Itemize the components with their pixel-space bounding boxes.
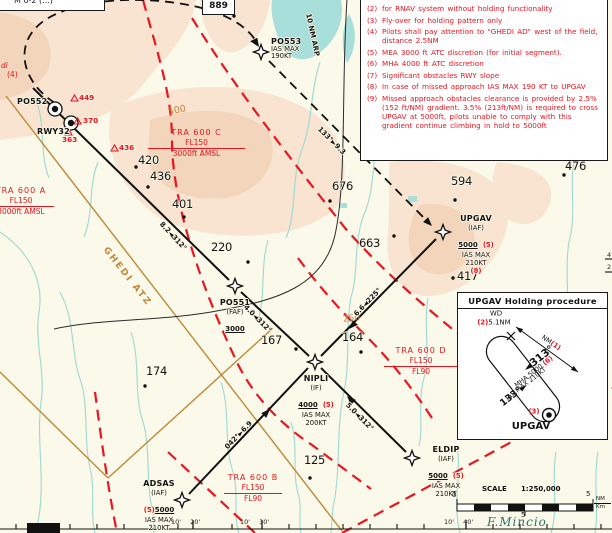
spot-elevation: 476 — [565, 161, 586, 173]
obstacle-elevation: 436 — [119, 144, 134, 151]
river-label: F.Mincio — [487, 516, 547, 528]
graticule-edge-label: 4 — [607, 252, 611, 259]
procedure-notes-box: (2)for RNAV system without holding funct… — [360, 0, 608, 161]
tra-zone-label-b: TRA 600 B FL150 FL90 — [224, 473, 282, 504]
spot-elevation: 594 — [451, 176, 472, 188]
scale-five: 5 — [586, 491, 590, 498]
obstacle-elevation: 449 — [79, 94, 94, 101]
arrowhead-icon — [516, 327, 523, 333]
holding-wd-value: (2)5.1NM — [477, 320, 510, 327]
scale-ratio: 1:250,000 — [521, 486, 561, 493]
note-item: (6)MHA 4000 ft ATC discretion — [367, 59, 602, 68]
note-item: (8)In case of missed approach IAS MAX 19… — [367, 82, 602, 91]
waypoint-icon-po553 — [254, 45, 269, 60]
tra-zone-label-c: TRA 600 C FL150 3000ft AMSL — [148, 128, 245, 159]
waypoint-label-upgav: UPGAV (IAF) 5000 (5) IAS MAX 210KT (8) — [452, 214, 500, 275]
holding-procedure-box: UPGAV Holding procedure WD (2)5.1NM NM(1… — [457, 292, 608, 440]
cutoff-title-box: M 0-2 (...) — [0, 0, 105, 11]
waypoint-icon-po551 — [228, 279, 243, 294]
max-elevation-box: 889 — [202, 0, 235, 15]
cutoff-label-box — [27, 523, 60, 533]
tra-zone-label-d: TRA 600 D FL150 FL90 — [384, 346, 458, 377]
waypoint-label-po553: PO553 IAS MAX 190KT — [271, 38, 301, 60]
graticule-label: 10'40' — [444, 518, 473, 526]
graticule-label: 10'30' — [240, 518, 269, 526]
pond — [408, 196, 417, 202]
spot-elevation: 125 — [304, 455, 325, 467]
pond — [340, 203, 347, 208]
note-item: (7)Significant obstacles RWY slope — [367, 71, 602, 80]
scale-label: SCALE — [482, 486, 507, 493]
spot-elevation: 436 — [150, 171, 171, 183]
scale-unit-km: Km — [596, 505, 605, 511]
spot-elevation: 220 — [211, 242, 232, 254]
scale-unit-nm: NM — [596, 497, 605, 503]
arrowhead-icon — [571, 366, 578, 372]
waypoint-icon-nipli — [308, 355, 323, 370]
note-item: (4)Pilots shall pay attention to "GHEDI … — [367, 27, 602, 45]
obstacle-elevation: 363 — [62, 136, 77, 143]
note-item: (9)Missed approach obstacles clearance i… — [367, 94, 602, 130]
holding-wd-label: WD — [490, 311, 502, 318]
waypoint-label-po552: PO552 — [17, 98, 47, 106]
spot-elevation: 663 — [359, 238, 380, 250]
spot-elevation: 164 — [342, 332, 363, 344]
graticule-label: 10'20' — [171, 518, 200, 526]
spot-elevation: 676 — [332, 181, 353, 193]
scale-bar — [457, 499, 611, 516]
waypoint-label-po551: PO551 (FAF) 3000 — [213, 298, 257, 335]
holding-fix-name: UPGAV — [512, 422, 550, 432]
scale-mid: 5 — [521, 512, 525, 519]
waypoint-label-eldip: ELDIP (IAF) 5000 (5) IAS MAX 210KT — [422, 445, 470, 498]
note-item: (2)for RNAV system without holding funct… — [367, 4, 602, 13]
ghedi-label-fragment: (4) — [7, 71, 18, 79]
waypoint-label-nipli: NIPLI (IF) 4000 (5) IAS MAX 200KT — [294, 374, 338, 427]
holding-fix-note: (3) — [529, 409, 540, 416]
note-item: (5)MEA 3000 ft ATC discretion (for initi… — [367, 48, 602, 57]
graticule-edge-label: 2 — [607, 264, 611, 271]
spot-elevation: 174 — [146, 366, 167, 378]
approach-chart: PO553 IAS MAX 190KT PO552 RWY32 449 370 … — [0, 0, 612, 533]
ghedi-label-fragment: di — [1, 62, 8, 70]
obstacle-elevation: 370 — [83, 117, 98, 124]
scale-zero: 0 — [452, 492, 456, 499]
waypoint-icon-eldip — [405, 451, 420, 466]
tra-zone-label-a: TRA 600 A FL150 3000ft AMSL — [0, 186, 54, 217]
spot-elevation: 167 — [261, 335, 282, 347]
spot-elevation: 401 — [172, 199, 193, 211]
note-item: (3)Fly-over for holding pattern only — [367, 16, 602, 25]
